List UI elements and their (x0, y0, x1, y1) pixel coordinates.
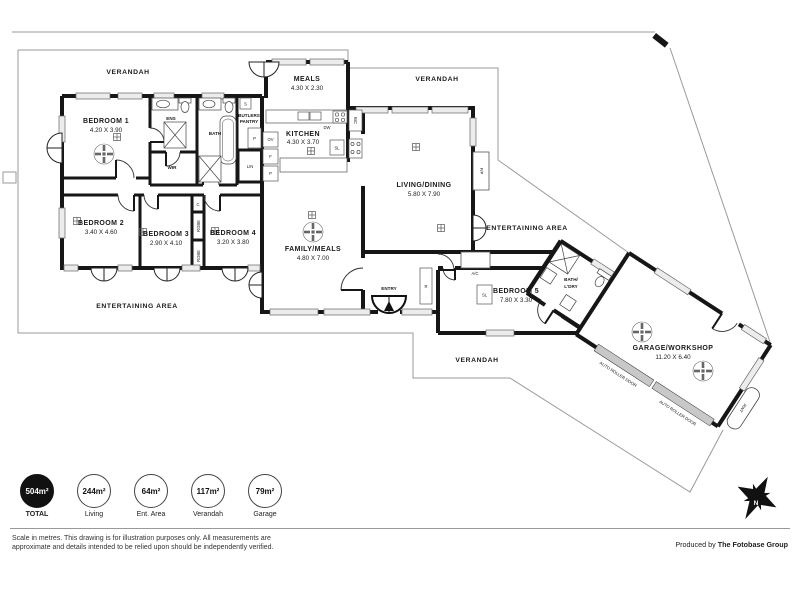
fp-label: F/P (479, 168, 484, 175)
butlers-pantry-label-1: BUTLERS (238, 113, 260, 118)
stat-garage-value: 79m² (256, 487, 275, 496)
disclaimer-text: Scale in metres. This drawing is for ill… (12, 534, 274, 553)
wir-label: WIR (168, 165, 178, 170)
floorplan-page: AUTO ROLLER DOOR AUTO ROLLER DOOR (0, 0, 800, 600)
cupboard-label: C (196, 202, 199, 207)
stat-total: 504m² TOTAL (14, 474, 60, 518)
pantry2-label: P (269, 171, 272, 176)
bedroom5-dims: 7.80 X 3.30 (500, 297, 533, 304)
stat-verandah: 117m² Verandah (185, 474, 231, 518)
bedroom2-dims: 3.40 X 4.60 (85, 229, 118, 236)
s-label: S (244, 102, 247, 107)
ceiling-fans (94, 144, 713, 381)
living-dining-dims: 5.80 X 7.90 (408, 191, 441, 198)
compass-n-label: N (754, 500, 759, 507)
stat-total-label: TOTAL (26, 511, 49, 518)
stat-garage-label: Garage (253, 511, 276, 518)
stat-verandah-circle: 117m² (191, 474, 225, 508)
stat-total-circle: 504m² (20, 474, 54, 508)
stat-living-label: Living (85, 511, 103, 518)
verandah-ne-label: VERANDAH (415, 76, 458, 83)
bic-label: BIC (353, 117, 358, 124)
stat-ent-area-circle: 64m² (134, 474, 168, 508)
bath-ldry-label-2: L'DRY (564, 284, 577, 289)
boundary-gate (652, 33, 668, 48)
bedroom3-label: BEDROOM 3 (143, 231, 189, 238)
stat-verandah-label: Verandah (193, 511, 223, 518)
bath-ldry-label-1: BATH/ (564, 277, 578, 282)
disclaimer-line-1: Scale in metres. This drawing is for ill… (12, 534, 274, 543)
fridge-label: F (269, 154, 272, 159)
property-boundary (3, 32, 771, 492)
stat-total-value: 504m² (25, 487, 48, 496)
bedroom4-dims: 3.20 X 3.80 (217, 239, 250, 246)
company-name: The Fotobase Group (718, 540, 788, 549)
bedroom5-label: BEDROOM 5 (493, 288, 539, 295)
butlers-pantry-label-2: PANTRY (240, 119, 258, 124)
garage-dims: 11.20 X 6.40 (655, 354, 691, 361)
family-meals-label: FAMILY/MEALS (285, 246, 341, 253)
kitchen-label: KITCHEN (286, 131, 320, 138)
linen-label: LIN (247, 164, 254, 169)
entry-label: ENTRY (381, 286, 396, 291)
stat-ent-area-label: Ent. Area (137, 511, 166, 518)
robe1-label: ROBE (196, 220, 201, 232)
dw-label: DW (324, 125, 331, 130)
verandah-nw-label: VERANDAH (106, 69, 149, 76)
bedroom4-label: BEDROOM 4 (210, 230, 256, 237)
robe-r-label: R (424, 284, 427, 289)
verandah-s-label: VERANDAH (455, 357, 498, 364)
robe2-label: ROBE (196, 250, 201, 262)
garage-label: GARAGE/WORKSHOP (633, 345, 714, 352)
stat-ent-area-value: 64m² (142, 487, 161, 496)
stat-living: 244m² Living (71, 474, 117, 518)
footer-divider (10, 528, 790, 529)
bathroom-fixtures (199, 98, 236, 182)
windows (59, 59, 514, 336)
stat-verandah-value: 117m² (197, 487, 220, 496)
sl-bed5-label: SL (482, 293, 488, 298)
entertaining-w-label: ENTERTAINING AREA (96, 303, 178, 310)
bedroom1-dims: 4.20 X 3.90 (90, 127, 123, 134)
bedroom2-label: BEDROOM 2 (78, 220, 124, 227)
meals-dims: 4.30 X 2.30 (291, 85, 324, 92)
air-conditioner (461, 252, 490, 268)
ens-label: ENS (166, 116, 175, 121)
pantry-label: P (253, 136, 256, 141)
compass-icon: N (726, 466, 787, 529)
entertaining-e-label: ENTERTAINING AREA (486, 225, 568, 232)
kitchen-dims: 4.30 X 3.70 (287, 139, 320, 146)
stat-ent-area: 64m² Ent. Area (128, 474, 174, 518)
disclaimer-line-2: approximate and details intended to be r… (12, 543, 274, 552)
produced-by-text: Produced by (675, 540, 717, 549)
stat-living-value: 244m² (82, 487, 105, 496)
stat-garage: 79m² Garage (242, 474, 288, 518)
ensuite-fixtures (152, 98, 191, 148)
ac-label: A/C (472, 271, 479, 276)
family-meals-dims: 4.80 X 7.00 (297, 255, 330, 262)
oven-label: OV (267, 137, 273, 142)
sl-kitchen-label: SL (334, 146, 340, 151)
meals-label: MEALS (294, 76, 321, 83)
producer-credit: Produced by The Fotobase Group (675, 540, 788, 549)
stat-garage-circle: 79m² (248, 474, 282, 508)
bedroom1-label: BEDROOM 1 (83, 118, 129, 125)
area-summary: 504m² TOTAL 244m² Living 64m² Ent. Area … (14, 474, 288, 518)
bedroom3-dims: 2.90 X 4.10 (150, 240, 183, 247)
stat-living-circle: 244m² (77, 474, 111, 508)
bath-label: BATH (209, 131, 222, 136)
living-dining-label: LIVING/DINING (397, 182, 452, 189)
